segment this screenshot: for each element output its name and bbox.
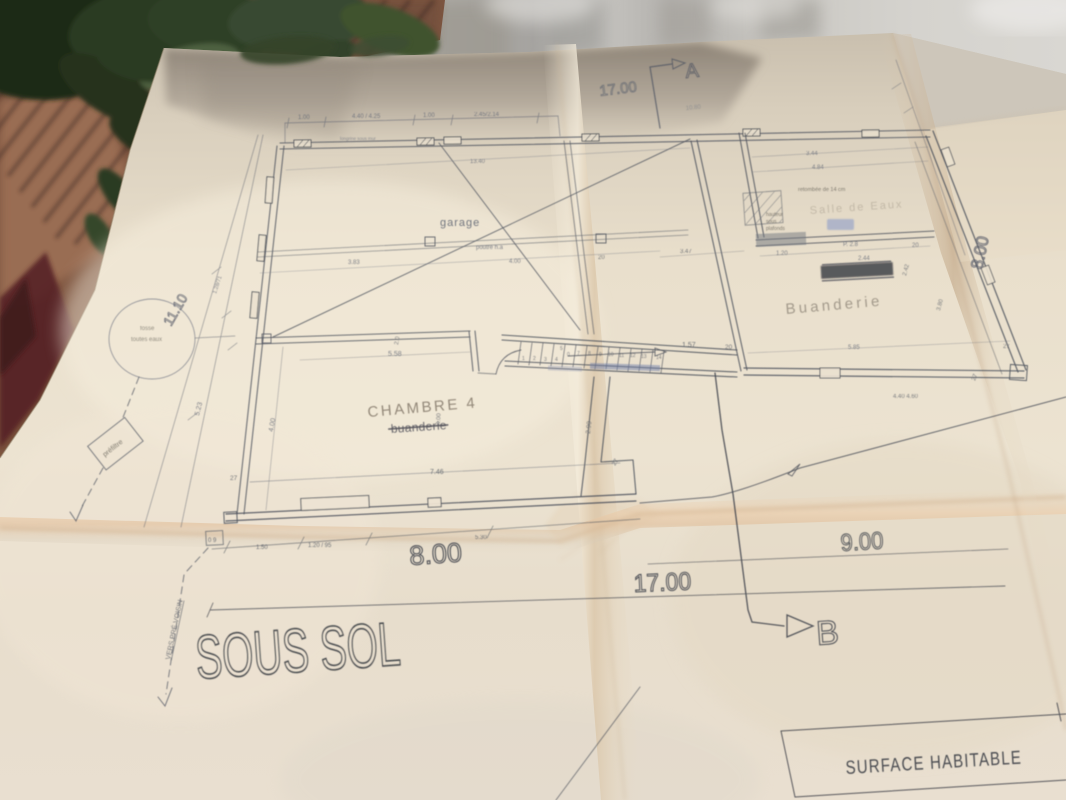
- svg-text:1.00: 1.00: [298, 115, 310, 121]
- svg-text:garage: garage: [440, 217, 480, 229]
- svg-text:10: 10: [608, 352, 614, 358]
- svg-text:14: 14: [656, 355, 662, 361]
- svg-text:P. 2.8: P. 2.8: [843, 242, 859, 248]
- svg-text:toutes eaux: toutes eaux: [131, 337, 162, 343]
- svg-text:4: 4: [555, 357, 558, 363]
- svg-text:4.84: 4.84: [812, 165, 824, 171]
- svg-text:1.00: 1.00: [423, 113, 435, 119]
- svg-text:4.40 4.60: 4.40 4.60: [893, 394, 919, 400]
- svg-text:7: 7: [577, 351, 580, 357]
- svg-text:1.20: 1.20: [776, 251, 788, 257]
- svg-text:27: 27: [1003, 344, 1010, 350]
- svg-text:4.00: 4.00: [509, 259, 521, 265]
- svg-text:1: 1: [522, 356, 525, 362]
- svg-text:7.46: 7.46: [430, 469, 444, 476]
- svg-text:2.45/2.14: 2.45/2.14: [474, 112, 500, 118]
- svg-text:5.58: 5.58: [388, 351, 402, 358]
- svg-text:20: 20: [598, 255, 605, 261]
- svg-text:retombée de 14 cm: retombée de 14 cm: [798, 187, 846, 193]
- svg-text:poutre h.a: poutre h.a: [476, 245, 504, 251]
- svg-text:2: 2: [533, 356, 536, 362]
- svg-text:0: 0: [567, 352, 570, 358]
- svg-text:8: 8: [588, 351, 591, 357]
- svg-text:8.00: 8.00: [408, 537, 463, 571]
- svg-text:5.30: 5.30: [475, 535, 487, 541]
- svg-text:12: 12: [630, 353, 636, 359]
- svg-text:1.57: 1.57: [682, 342, 696, 349]
- svg-text:3.44: 3.44: [806, 151, 818, 157]
- svg-text:13: 13: [641, 354, 647, 360]
- svg-text:2.44: 2.44: [858, 256, 870, 262]
- svg-text:2.90: 2.90: [585, 421, 593, 435]
- svg-text:3.83: 3.83: [348, 260, 360, 266]
- svg-text:longrine sous mur: longrine sous mur: [340, 136, 376, 141]
- svg-text:plafonds: plafonds: [766, 226, 785, 232]
- svg-text:5.85: 5.85: [848, 345, 860, 351]
- svg-text:0 9: 0 9: [208, 538, 217, 544]
- svg-text:SOUS SOL: SOUS SOL: [193, 610, 402, 693]
- svg-text:20: 20: [725, 344, 733, 351]
- svg-text:17.00: 17.00: [633, 568, 692, 599]
- svg-text:27: 27: [230, 475, 238, 482]
- svg-text:5: 5: [560, 346, 563, 352]
- svg-text:9.00: 9.00: [840, 527, 885, 557]
- svg-text:fosse: fosse: [140, 326, 155, 332]
- svg-text:hauteur: hauteur: [766, 212, 783, 218]
- svg-text:13.40: 13.40: [470, 159, 486, 165]
- svg-text:3.47: 3.47: [680, 249, 692, 255]
- svg-text:3: 3: [544, 357, 547, 363]
- svg-text:4.40 / 4.25: 4.40 / 4.25: [352, 114, 381, 120]
- svg-text:1.20 / 95: 1.20 / 95: [308, 543, 332, 549]
- svg-text:20: 20: [912, 243, 919, 249]
- svg-text:sous: sous: [766, 219, 777, 225]
- svg-text:B: B: [815, 613, 840, 652]
- svg-text:1.50: 1.50: [256, 545, 268, 551]
